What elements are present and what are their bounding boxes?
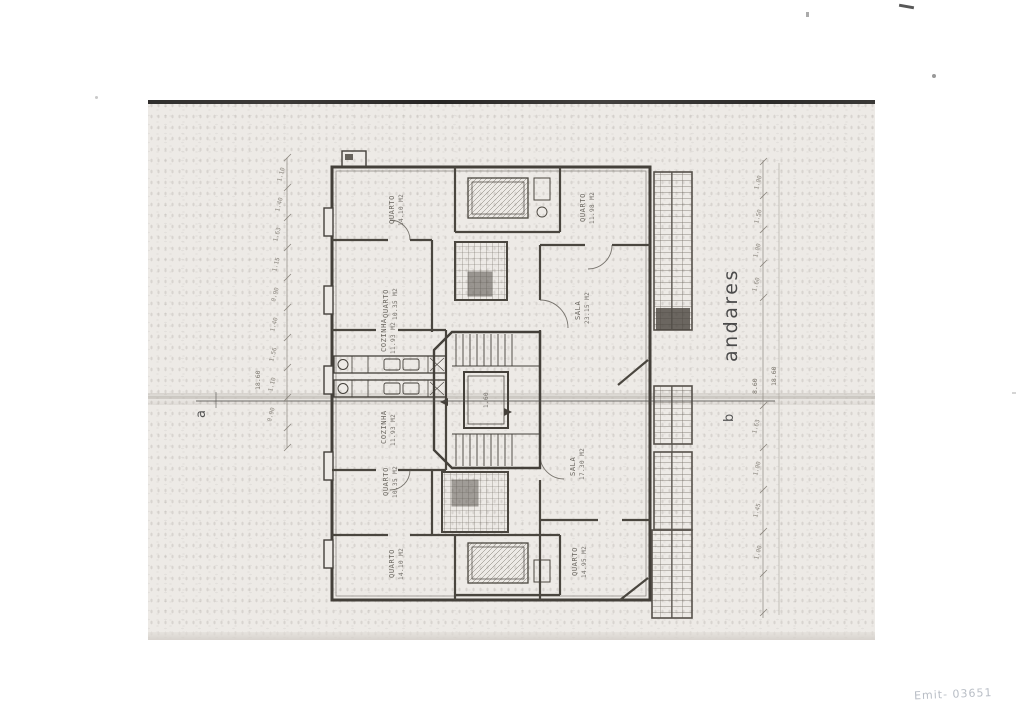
svg-text:1.10: 1.10 bbox=[267, 376, 278, 392]
svg-text:11.93 M2: 11.93 M2 bbox=[390, 414, 397, 446]
dim-total-left: 18.60 bbox=[254, 370, 262, 390]
bathroom-upper bbox=[468, 178, 550, 218]
room-label-cozinha-lower: COZINHA bbox=[380, 410, 388, 444]
svg-text:11.93 M2: 11.93 M2 bbox=[390, 322, 397, 354]
room-label-quarto-bl: QUARTO bbox=[388, 549, 396, 578]
svg-text:11.98 M2: 11.98 M2 bbox=[589, 192, 596, 224]
svg-text:1.00: 1.00 bbox=[752, 460, 763, 476]
svg-text:10.35 M2: 10.35 M2 bbox=[392, 466, 399, 498]
svg-text:14.10 M2: 14.10 M2 bbox=[398, 194, 405, 226]
svg-text:23.15 M2: 23.15 M2 bbox=[584, 292, 591, 324]
wc-upper bbox=[455, 242, 507, 300]
kitchen-counters bbox=[334, 356, 446, 397]
bathroom-lower bbox=[468, 543, 550, 583]
svg-text:1.45: 1.45 bbox=[752, 502, 763, 518]
speck bbox=[806, 12, 809, 17]
svg-text:1.56: 1.56 bbox=[268, 346, 279, 362]
room-label-quarto-ur: QUARTO bbox=[579, 193, 587, 222]
speck bbox=[932, 74, 936, 78]
svg-text:1.50: 1.50 bbox=[753, 208, 764, 224]
svg-text:1.63: 1.63 bbox=[751, 418, 762, 434]
room-label-quarto-br: QUARTO bbox=[571, 547, 579, 576]
svg-text:10.35 M2: 10.35 M2 bbox=[392, 288, 399, 320]
svg-text:1.63: 1.63 bbox=[272, 226, 283, 242]
interior-walls bbox=[332, 167, 650, 600]
svg-text:1.00: 1.00 bbox=[753, 174, 764, 190]
svg-text:1.00: 1.00 bbox=[752, 242, 763, 258]
section-letter-a: a bbox=[194, 410, 209, 418]
wc-lower bbox=[442, 472, 508, 532]
floor-plan-drawing: a b andares QUARTO 14.10 M2 QUARTO 11.98… bbox=[0, 0, 1019, 720]
svg-text:14.95 M2: 14.95 M2 bbox=[581, 546, 588, 578]
svg-text:1.40: 1.40 bbox=[274, 196, 285, 212]
svg-text:1.00: 1.00 bbox=[753, 544, 764, 560]
dim-overall-total-right: 18.60 bbox=[770, 366, 778, 386]
speck bbox=[1012, 392, 1016, 394]
svg-text:1.60: 1.60 bbox=[751, 276, 762, 292]
svg-text:1.15: 1.15 bbox=[271, 256, 282, 272]
svg-text:0.90: 0.90 bbox=[270, 286, 281, 302]
room-label-quarto-ul: QUARTO bbox=[388, 195, 396, 224]
room-label-sala-upper: SALA bbox=[574, 301, 582, 320]
floors-label: andares bbox=[720, 268, 742, 362]
svg-text:17.30 M2: 17.30 M2 bbox=[579, 448, 586, 480]
svg-text:0.90: 0.90 bbox=[266, 406, 277, 422]
section-letter-b: b bbox=[722, 414, 737, 422]
room-label-cozinha-upper: COZINHA bbox=[380, 318, 388, 352]
room-label-quarto-bl-mid: QUARTO bbox=[382, 467, 390, 496]
svg-text:1.10: 1.10 bbox=[276, 166, 287, 182]
dimension-chain-left: 1.10 1.40 1.63 1.15 0.90 1.40 1.56 1.10 … bbox=[254, 154, 291, 451]
dim-mid-total-right: 8.60 bbox=[751, 378, 759, 394]
speck bbox=[95, 96, 98, 99]
balconies bbox=[652, 172, 692, 618]
room-label-sala-lower: SALA bbox=[569, 457, 577, 476]
svg-text:1.40: 1.40 bbox=[269, 316, 280, 332]
elevator-dim-label: 1.60 bbox=[483, 392, 490, 408]
room-label-quarto-ml: QUARTO bbox=[382, 289, 390, 318]
svg-text:14.10 M2: 14.10 M2 bbox=[398, 548, 405, 580]
dimension-chain-right: 1.00 1.50 1.00 1.60 8.60 18.60 1.63 1.00… bbox=[751, 158, 779, 618]
